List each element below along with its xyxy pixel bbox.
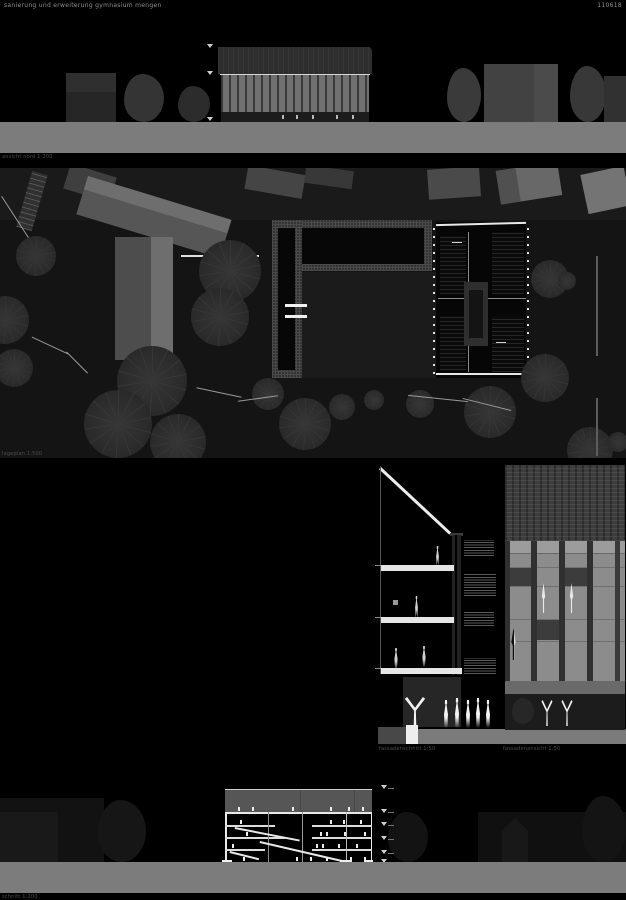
tree-silhouette	[98, 800, 146, 862]
figure-mark	[246, 832, 248, 836]
tree-silhouette	[582, 796, 626, 862]
context-building-part	[0, 812, 58, 862]
figure-mark	[356, 844, 358, 848]
floor-line	[312, 837, 372, 839]
figure-mark	[232, 844, 234, 848]
ground-band	[0, 862, 626, 893]
floor-line	[312, 849, 372, 851]
figure-mark	[296, 857, 298, 861]
figure-mark	[338, 844, 340, 848]
wall-line	[268, 812, 269, 862]
presentation-board: { "board": { "title": "sanierung und erw…	[0, 0, 626, 900]
level-marker-icon	[381, 785, 387, 789]
figure-mark	[320, 832, 322, 836]
roof-seam	[354, 790, 355, 812]
drawing-long-section: schnitt 1:200	[0, 0, 626, 900]
figure-mark	[330, 820, 332, 824]
wall-line	[302, 812, 303, 862]
figure-mark	[364, 832, 366, 836]
level-marker-icon	[381, 850, 387, 854]
drawing-label: schnitt 1:200	[2, 894, 38, 900]
level-tick	[388, 812, 394, 813]
floor-line	[312, 825, 372, 827]
figure-mark	[310, 857, 312, 861]
roof-seam	[300, 790, 301, 812]
figure-mark	[252, 807, 254, 811]
floor-line	[225, 837, 285, 839]
figure-mark	[348, 807, 350, 811]
context-building	[0, 798, 104, 862]
figure-mark	[292, 807, 294, 811]
wall-line	[346, 812, 347, 862]
level-tick	[388, 853, 394, 854]
level-marker-icon	[381, 836, 387, 840]
figure-mark	[326, 857, 328, 861]
figure-mark	[330, 807, 332, 811]
figure-mark	[362, 807, 364, 811]
level-marker-icon	[381, 822, 387, 826]
figure-mark	[360, 820, 362, 824]
figure-mark	[243, 857, 245, 861]
level-tick	[388, 839, 394, 840]
figure-mark	[344, 832, 346, 836]
figure-mark	[240, 820, 242, 824]
section-building	[225, 789, 372, 865]
figure-mark	[238, 807, 240, 811]
figure-mark	[316, 844, 318, 848]
level-tick	[388, 788, 394, 789]
tree-silhouette	[388, 812, 428, 862]
figure-mark	[326, 832, 328, 836]
floor-line	[225, 812, 372, 814]
level-tick	[388, 825, 394, 826]
figure-mark	[343, 820, 345, 824]
level-marker-icon	[381, 809, 387, 813]
figure-mark	[322, 844, 324, 848]
